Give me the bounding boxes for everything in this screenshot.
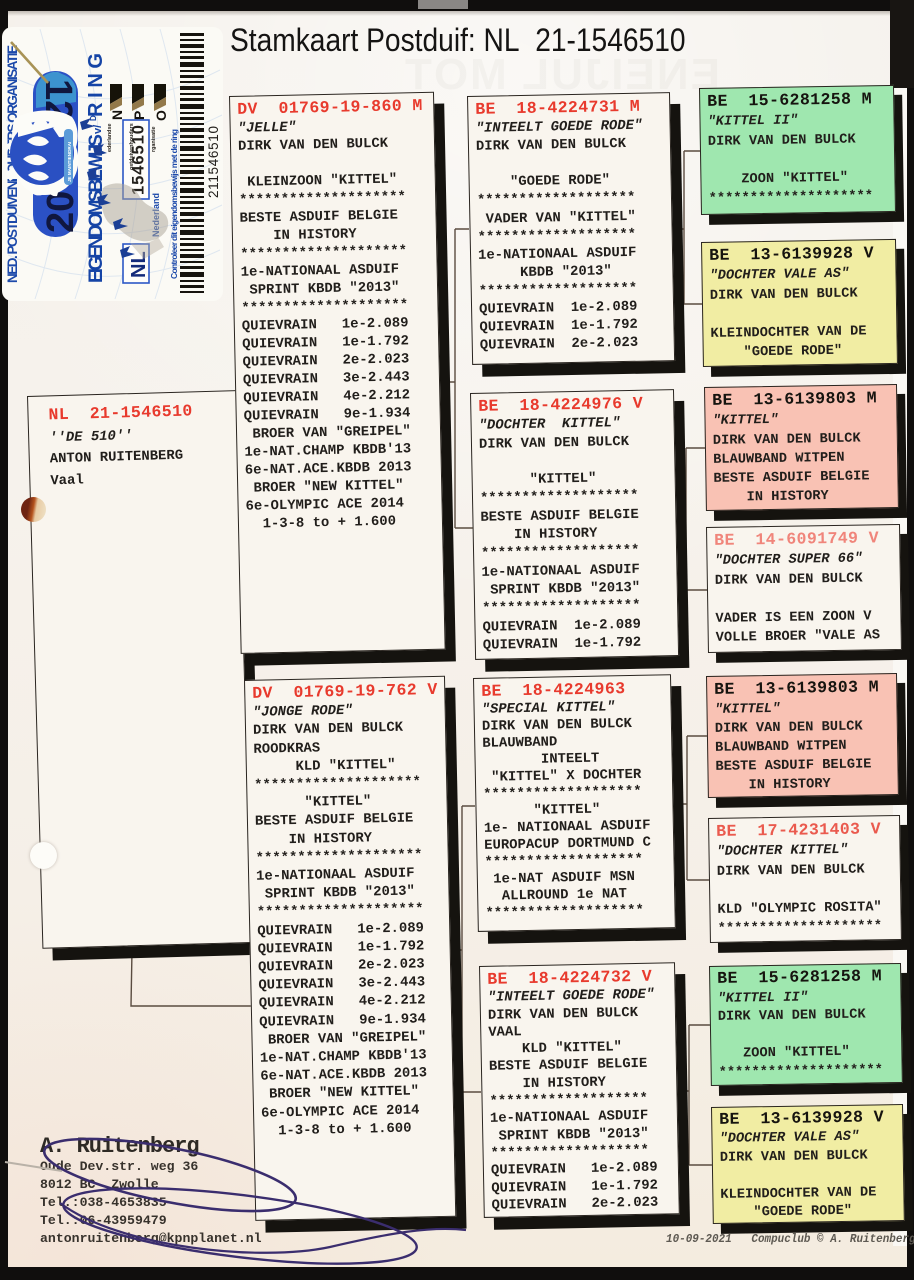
svg-text:ederlandse: ederlandse [107,124,113,152]
svg-text:20: 20 [40,191,82,233]
svg-text:P: P [131,111,147,120]
svg-text:rganisatie: rganisatie [151,127,157,152]
svg-text:RING: RING [85,53,107,117]
svg-text:N: N [109,110,125,120]
svg-text:ostduivenhouders: ostduivenhouders [129,123,135,170]
svg-text:O: O [153,110,169,121]
svg-text:JE MAINTIENDRAI: JE MAINTIENDRAI [67,142,72,182]
svg-text:211546510: 211546510 [206,126,221,198]
svg-text:Controleer dit eigendomsbewijs: Controleer dit eigendomsbewijs met de ri… [169,129,179,279]
